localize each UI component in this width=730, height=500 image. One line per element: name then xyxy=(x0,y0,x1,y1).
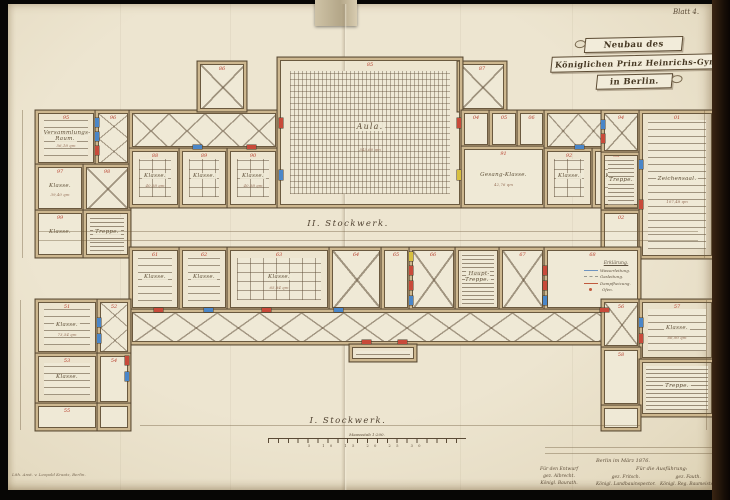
fixture xyxy=(639,160,643,169)
room-area: 73,54 qm xyxy=(39,332,95,337)
room: 88Klasse.40,58 qm xyxy=(132,151,178,205)
exec1-name: gez. Fritsch. xyxy=(596,474,656,481)
room: 57Klasse.66,90 qm xyxy=(642,302,712,358)
room: Treppe. xyxy=(86,213,128,255)
room-number: 97 xyxy=(39,169,81,175)
scale-numbers: 5 10 15 20 25 30 xyxy=(268,444,466,448)
room-number: 68 xyxy=(548,252,637,258)
room-number: 61 xyxy=(133,252,177,258)
room-number: 91 xyxy=(465,151,542,157)
fixture xyxy=(125,356,129,365)
execution-signature-2: gez. Fauth. Königl. Reg. Baumeister. xyxy=(660,474,716,488)
room: 96 xyxy=(98,113,128,163)
room-number: 85 xyxy=(281,62,459,68)
fixture xyxy=(362,340,371,344)
room-label: Klasse. xyxy=(643,325,711,331)
dimension-line xyxy=(545,453,717,454)
room: 64 xyxy=(332,250,380,308)
fixture xyxy=(543,281,547,290)
room-number: 55 xyxy=(39,408,95,414)
fixture xyxy=(279,118,283,128)
room-area: 40,58 qm xyxy=(133,183,177,188)
room: 56 xyxy=(604,302,638,346)
room: 91Gesang-Klasse.42,76 qm xyxy=(464,149,543,205)
room-label: Klasse. xyxy=(231,274,327,280)
room: 89Klasse. xyxy=(182,151,226,205)
room-label: Zeichensaal. xyxy=(643,176,711,182)
room-label: Treppe. xyxy=(643,383,711,389)
room-number: 94 xyxy=(605,115,637,121)
room: 63Klasse.65,84 qm xyxy=(230,250,328,308)
fixture xyxy=(409,296,413,305)
room: 98 xyxy=(86,167,128,209)
room-number: 05 xyxy=(493,115,515,121)
scale-caption: Maassstab 1:200. xyxy=(268,432,466,437)
room-label: Klasse. xyxy=(39,183,81,189)
fixture xyxy=(543,296,547,305)
room: 61Klasse. xyxy=(132,250,178,308)
room: 85Aula.343,60 qm xyxy=(280,60,460,205)
dimension-line xyxy=(545,447,717,448)
room-number: 65 xyxy=(385,252,407,258)
legend-item: Dampfheizung. xyxy=(584,281,648,286)
legend-swatch xyxy=(584,283,598,284)
exec2-title: Königl. Reg. Baumeister. xyxy=(660,481,716,488)
room: 62Klasse. xyxy=(182,250,226,308)
lithography-credit: Lith. Anst. v. Leopold Kraatz, Berlin. xyxy=(12,472,86,477)
room: 66 xyxy=(412,250,454,308)
room-label: Versammlungs-Raum. xyxy=(39,130,93,142)
room-number: 86 xyxy=(201,66,243,72)
fixture xyxy=(639,318,643,327)
fixture xyxy=(639,334,643,343)
room: 99Klasse. xyxy=(38,213,82,255)
exec2-name: gez. Fauth. xyxy=(660,474,716,481)
room: 95Versammlungs-Raum.56,18 qm xyxy=(38,113,94,163)
room-number: 04 xyxy=(465,115,487,121)
legend-swatch xyxy=(589,288,592,291)
legend-item: Gasleitung. xyxy=(584,274,648,279)
room xyxy=(352,347,414,359)
room: 53Klasse. xyxy=(38,356,96,402)
room-label: Klasse. xyxy=(133,173,177,179)
room-number: 51 xyxy=(39,304,95,310)
room: 05 xyxy=(492,113,516,145)
design-title: Königl. Baurath. xyxy=(540,480,578,487)
room-number: 90 xyxy=(231,153,275,159)
dimension-line xyxy=(20,300,21,430)
room-number: 95 xyxy=(39,115,93,121)
room-label: Klasse. xyxy=(548,173,590,179)
legend-item: Ofen. xyxy=(584,287,648,292)
fixture xyxy=(125,372,129,381)
room-number: 67 xyxy=(503,252,542,258)
fixture xyxy=(95,132,99,141)
room-number: 88 xyxy=(133,153,177,159)
legend-swatch xyxy=(584,276,598,277)
room: 92Klasse. xyxy=(547,151,591,205)
room-area: 40,58 qm xyxy=(231,183,275,188)
fixture xyxy=(154,308,163,312)
room-area: 66,90 qm xyxy=(643,335,711,340)
room: Treppe. xyxy=(604,155,638,209)
design-name: gez. Albrecht. xyxy=(540,473,578,480)
fixture xyxy=(600,308,609,312)
design-signature: Für den Entwurf gez. Albrecht. Königl. B… xyxy=(540,466,578,487)
legend-label: Wasserleitung. xyxy=(600,268,630,273)
room-number: 87 xyxy=(461,66,503,72)
dimension-line xyxy=(706,300,707,430)
room-number: 99 xyxy=(39,215,81,221)
fixture xyxy=(398,340,407,344)
room-area: 65,84 qm xyxy=(231,285,327,290)
fixture xyxy=(543,266,547,275)
room-number: 62 xyxy=(183,252,225,258)
room-number: 96 xyxy=(99,115,127,121)
lower-floor-label: I. Stockwerk. xyxy=(268,416,428,426)
room: Treppe. xyxy=(642,362,712,414)
legend-title: Erklärung. xyxy=(584,261,648,266)
execution-signature-1: gez. Fritsch. Königl. Landbauinspector. xyxy=(596,474,656,488)
room xyxy=(132,312,638,342)
scale-bar: Maassstab 1:200. 5 10 15 20 25 30 xyxy=(268,432,466,448)
room-label: Klasse. xyxy=(133,274,177,280)
execution-header: Für die Ausführung: xyxy=(636,466,687,472)
room-label: Klasse. xyxy=(231,173,275,179)
room: 54 xyxy=(100,356,128,402)
fixture xyxy=(247,145,256,149)
room-number: 63 xyxy=(231,252,327,258)
fixture xyxy=(97,334,101,343)
room-area: 39,40 qm xyxy=(39,192,81,197)
room-number: 52 xyxy=(101,304,127,310)
room-number: 01 xyxy=(643,115,711,121)
legend: Erklärung. Wasserleitung.Gasleitung.Damp… xyxy=(584,261,648,292)
room: 01Zeichensaal.107,48 qm xyxy=(642,113,712,256)
room: 86 xyxy=(200,64,244,109)
room-area: 42,76 qm xyxy=(465,182,542,187)
fixture xyxy=(97,318,101,327)
fixture xyxy=(193,145,202,149)
exec1-title: Königl. Landbauinspector. xyxy=(596,481,656,488)
room-area: 56,18 qm xyxy=(39,143,93,148)
room-number: 57 xyxy=(643,304,711,310)
legend-label: Gasleitung. xyxy=(600,274,623,279)
dimension-line xyxy=(38,231,698,232)
room-label: Klasse. xyxy=(39,374,95,380)
room: 51Klasse.73,54 qm xyxy=(38,302,96,352)
room xyxy=(100,406,128,428)
room-label: Klasse. xyxy=(183,274,225,280)
room-number: 89 xyxy=(183,153,225,159)
room: Haupt-Treppe. xyxy=(458,250,498,308)
room-number: 64 xyxy=(333,252,379,258)
design-header: Für den Entwurf xyxy=(540,466,578,473)
room-number: 56 xyxy=(605,304,637,310)
fixture xyxy=(95,146,99,155)
room: 90Klasse.40,58 qm xyxy=(230,151,276,205)
room-number: 06 xyxy=(521,115,542,121)
fixture xyxy=(601,134,605,143)
room-area: 107,48 qm xyxy=(643,199,711,204)
room-number: 54 xyxy=(101,358,127,364)
legend-swatch xyxy=(584,270,598,271)
room: 87 xyxy=(460,64,504,109)
legend-label: Dampfheizung. xyxy=(600,281,631,286)
room: 58 xyxy=(604,350,638,404)
dimension-line xyxy=(704,110,705,258)
room: 04 xyxy=(464,113,488,145)
scale-ticks xyxy=(268,439,466,443)
fixture xyxy=(457,118,461,128)
room-number: 98 xyxy=(87,169,127,175)
room-area: 343,60 qm xyxy=(281,147,459,152)
room: 52 xyxy=(100,302,128,352)
room: 97Klasse.39,40 qm xyxy=(38,167,82,209)
fixture xyxy=(457,170,461,180)
fixture xyxy=(409,281,413,290)
dimension-line xyxy=(22,110,23,258)
legend-item: Wasserleitung. xyxy=(584,268,648,273)
room-label: Treppe. xyxy=(605,177,637,183)
dimension-line xyxy=(38,240,698,241)
room-number: 58 xyxy=(605,352,637,358)
fixture xyxy=(409,252,413,261)
room-label: Gesang-Klasse. xyxy=(465,172,542,178)
legend-items: Wasserleitung.Gasleitung.Dampfheizung.Of… xyxy=(584,268,648,293)
upper-floor-label: II. Stockwerk. xyxy=(268,219,428,229)
room-number: 66 xyxy=(413,252,453,258)
room: 06 xyxy=(520,113,543,145)
room-label: Haupt-Treppe. xyxy=(459,271,497,283)
fixture xyxy=(575,145,584,149)
book-spine-edge xyxy=(712,0,730,500)
fixture xyxy=(639,200,643,209)
fixture xyxy=(204,308,213,312)
fixture xyxy=(95,118,99,127)
room-number: 92 xyxy=(548,153,590,159)
room xyxy=(132,113,276,147)
room: 94 xyxy=(604,113,638,151)
room-label: Klasse. xyxy=(39,322,95,328)
room: 55 xyxy=(38,406,96,428)
fixture xyxy=(279,170,283,180)
room-number: 02 xyxy=(605,215,637,221)
fixture xyxy=(409,266,413,275)
room-label: Aula. xyxy=(281,124,459,130)
signature-date: Berlin im März 1876. xyxy=(596,458,650,464)
fixture xyxy=(334,308,343,312)
room-number: 53 xyxy=(39,358,95,364)
room-label: Klasse. xyxy=(183,173,225,179)
room: 65 xyxy=(384,250,408,308)
room: 67 xyxy=(502,250,543,308)
fixture xyxy=(262,308,271,312)
fixture xyxy=(601,120,605,129)
legend-label: Ofen. xyxy=(602,287,613,292)
